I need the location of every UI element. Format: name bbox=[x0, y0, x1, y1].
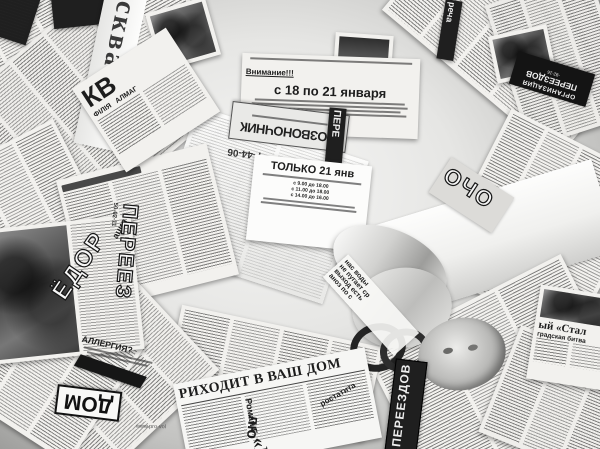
attention-text: Внимание!!! bbox=[246, 67, 294, 78]
text-column bbox=[569, 343, 600, 372]
text-column bbox=[307, 373, 374, 430]
text-fragment-lyu: лю bbox=[242, 414, 262, 439]
strip-text: ПЕРЕЕЗДОВ bbox=[389, 363, 413, 448]
strip-text: ПЕРЕ bbox=[329, 110, 342, 138]
text-column bbox=[533, 337, 569, 366]
newspaper-collage-photo: ация ЁДОР ПЕРЕЕЗ 50-02-11 осква в КВ ФІЛ… bbox=[0, 0, 600, 449]
headline-text: ДОМ bbox=[63, 389, 114, 418]
url-text: www.pro-vol bbox=[136, 424, 166, 431]
strip-text: реча bbox=[444, 1, 457, 23]
text-column bbox=[182, 397, 249, 449]
